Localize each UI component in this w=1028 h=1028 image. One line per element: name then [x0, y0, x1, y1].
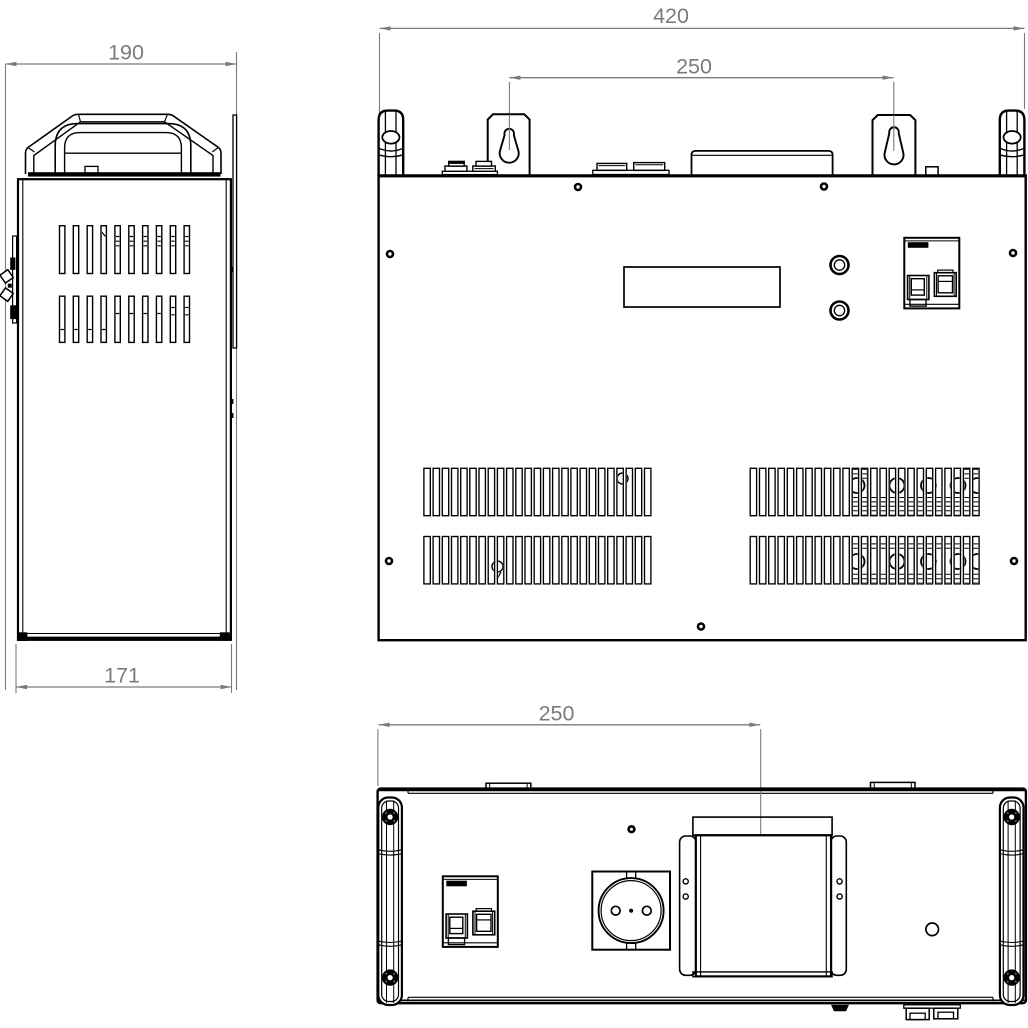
svg-text:250: 250 — [676, 54, 712, 78]
svg-text:190: 190 — [108, 41, 144, 65]
svg-text:420: 420 — [653, 4, 689, 28]
svg-text:250: 250 — [539, 701, 575, 725]
svg-text:171: 171 — [104, 664, 140, 688]
